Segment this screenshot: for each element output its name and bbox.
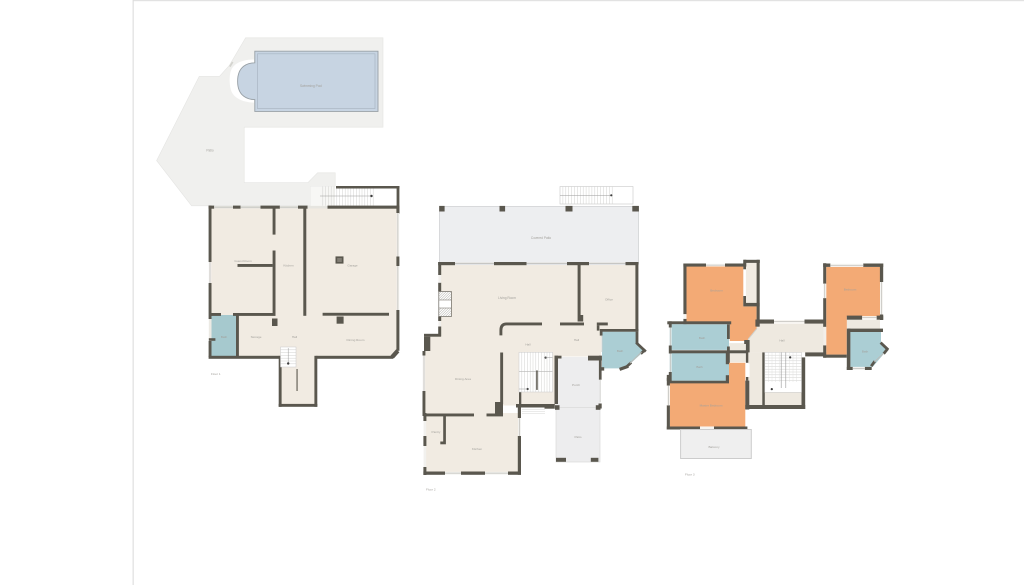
svg-text:Dining Room: Dining Room (347, 338, 365, 342)
svg-text:Bath: Bath (696, 365, 703, 369)
svg-text:Bath: Bath (862, 349, 869, 353)
svg-text:Bath: Bath (617, 349, 624, 353)
svg-text:Bath: Bath (221, 335, 228, 339)
svg-text:Dining Area: Dining Area (455, 377, 471, 381)
svg-text:Master Bedroom: Master Bedroom (700, 403, 723, 407)
svg-text:Hall: Hall (574, 338, 580, 342)
svg-text:Floor 2: Floor 2 (426, 488, 436, 492)
svg-text:Hall: Hall (292, 335, 298, 339)
svg-text:Swimming Pool: Swimming Pool (300, 84, 322, 88)
svg-text:Patio: Patio (206, 148, 213, 152)
svg-text:Patio: Patio (574, 435, 581, 439)
svg-text:Covered Patio: Covered Patio (531, 236, 551, 240)
svg-text:Pantry: Pantry (432, 430, 441, 434)
svg-text:Storage: Storage (251, 335, 262, 339)
svg-text:Porch: Porch (572, 383, 580, 387)
svg-text:Balcony: Balcony (708, 445, 719, 449)
svg-text:Kitchen: Kitchen (472, 447, 483, 451)
svg-text:Hall: Hall (779, 338, 785, 342)
svg-text:Bath: Bath (699, 336, 706, 340)
svg-text:Floor 3: Floor 3 (685, 473, 695, 477)
svg-text:Living Room: Living Room (498, 296, 516, 300)
svg-text:Floor 1: Floor 1 (211, 372, 221, 376)
svg-text:Office: Office (605, 297, 613, 301)
svg-text:Bedroom: Bedroom (844, 287, 857, 291)
svg-text:Garage: Garage (347, 263, 358, 267)
svg-text:Kitchen: Kitchen (283, 263, 294, 267)
svg-text:Hall: Hall (525, 342, 531, 346)
svg-text:Bedroom: Bedroom (710, 288, 723, 292)
svg-text:Guest Room: Guest Room (234, 259, 252, 263)
